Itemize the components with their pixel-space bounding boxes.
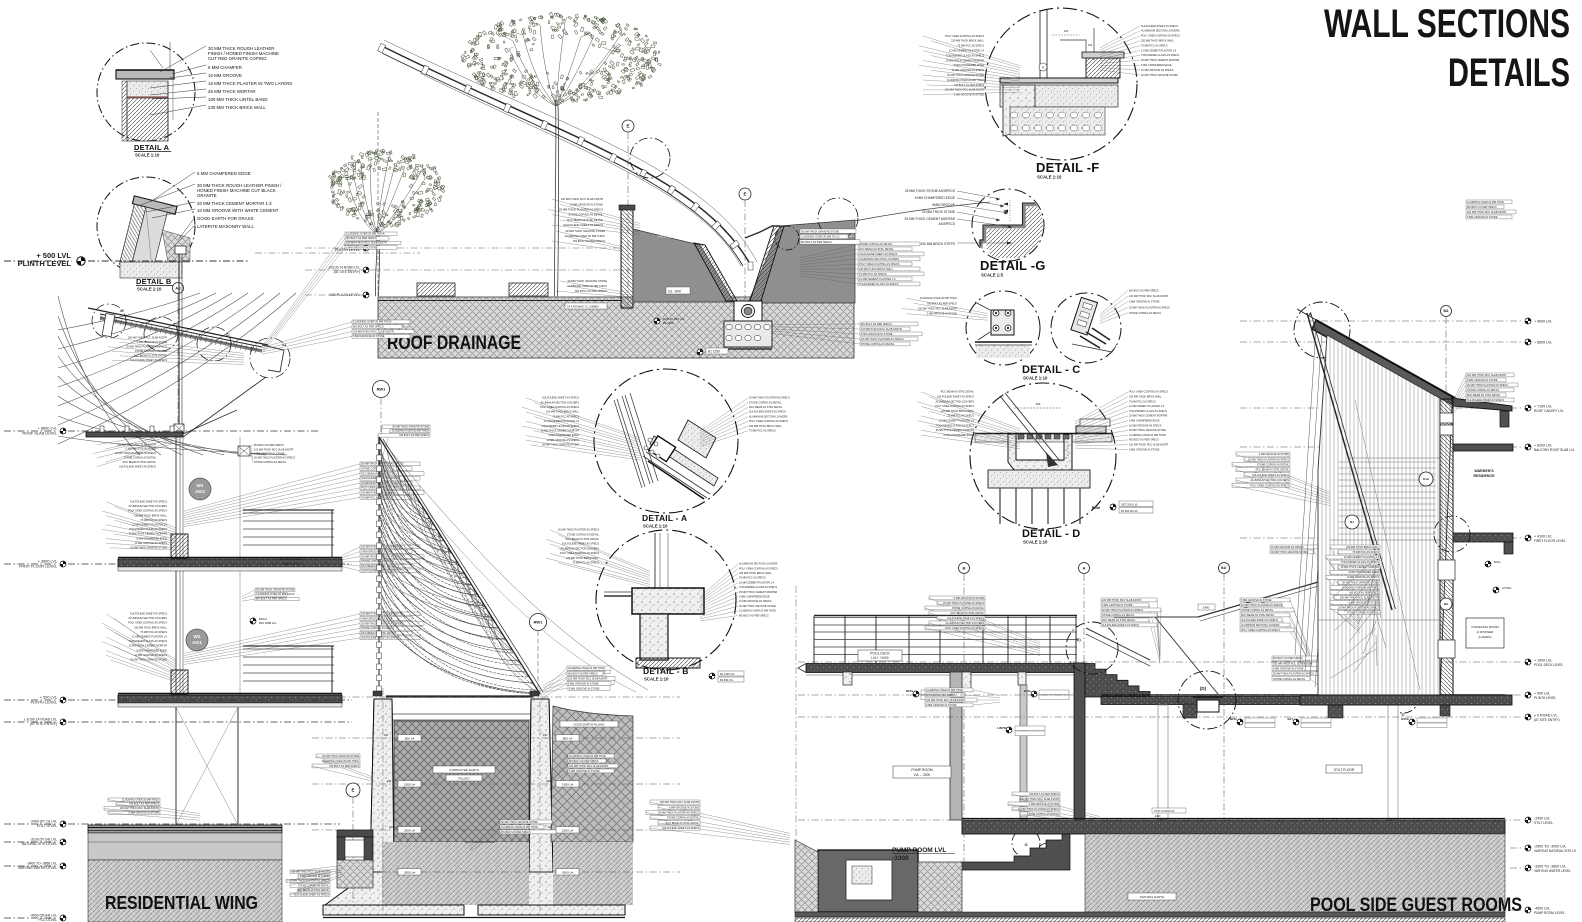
svg-text:100 MM THICK RCC SLAB ASSTR: 100 MM THICK RCC SLAB ASSTR	[1129, 444, 1168, 447]
svg-text:CLADDING OVER 20 MM THICK: CLADDING OVER 20 MM THICK	[1129, 434, 1167, 437]
svg-text:POOL SIDE GUEST ROOMS: POOL SIDE GUEST ROOMS	[1310, 894, 1522, 916]
svg-text:DETAIL -G: DETAIL -G	[980, 258, 1046, 273]
svg-text:COMPACTED EARTH: COMPACTED EARTH	[449, 768, 479, 772]
svg-text:W1: W1	[193, 634, 201, 640]
svg-text:MS BOLT AS PER SPECS: MS BOLT AS PER SPECS	[353, 325, 384, 329]
svg-text:12 MM CEMENT PLASTER 1:4: 12 MM CEMENT PLASTER 1:4	[132, 524, 168, 527]
svg-text:230 MM THICK BRICK WALL: 230 MM THICK BRICK WALL	[951, 40, 985, 43]
svg-text:75 MM PCC AS SPECS: 75 MM PCC AS SPECS	[140, 631, 167, 634]
svg-text:100: 100	[1064, 29, 1069, 33]
svg-text:(AT SITE ENTRY): (AT SITE ENTRY)	[1534, 718, 1560, 722]
svg-text:1500 L#: 1500 L#	[404, 782, 415, 786]
svg-text:SULFOLENE SHEET AS SPECS: SULFOLENE SHEET AS SPECS	[749, 411, 786, 414]
svg-text:SULFOLENE SHEET AS SPECS: SULFOLENE SHEET AS SPECS	[1252, 474, 1289, 477]
svg-text:CLADDING OVER 20 MM THICK: CLADDING OVER 20 MM THICK	[1342, 586, 1380, 589]
svg-text:5 MM GROOVE IN STONE: 5 MM GROOVE IN STONE	[569, 770, 600, 773]
svg-text:MS BOLT AS PER SPECS: MS BOLT AS PER SPECS	[861, 322, 892, 326]
svg-text:+ 1000 LVL: + 1000 LVL	[1534, 659, 1552, 663]
svg-text:2500 L#: 2500 L#	[562, 828, 573, 832]
svg-text:100 MM THICK RCC SLAB ASSTR: 100 MM THICK RCC SLAB ASSTR	[120, 807, 159, 810]
svg-text:230 MM THICK BRICK WALL: 230 MM THICK BRICK WALL	[739, 572, 773, 575]
svg-text:RW1: RW1	[377, 386, 387, 391]
svg-text:CLADDING OVER 20 MM THICK: CLADDING OVER 20 MM THICK	[392, 430, 430, 433]
svg-text:POLY UREA COATING AS SPECS: POLY UREA COATING AS SPECS	[128, 622, 167, 625]
svg-text:230 MM THICK BRICK WALL: 230 MM THICK BRICK WALL	[749, 425, 783, 428]
svg-text:W1: W1	[196, 483, 204, 489]
svg-text:CLADDING OVER 20 MM THICK: CLADDING OVER 20 MM THICK	[346, 232, 385, 236]
svg-text:STILT FLOOR LVL: STILT FLOOR LVL	[1154, 810, 1175, 813]
svg-text:30 MM THICK GRANITE STONE: 30 MM THICK GRANITE STONE	[322, 755, 359, 758]
svg-text:(D): (D)	[1200, 686, 1207, 691]
svg-text:100 MM THICK RCC SLAB ASSTR: 100 MM THICK RCC SLAB ASSTR	[117, 443, 156, 446]
svg-text:5 MM CHAMFERED EDGE: 5 MM CHAMFERED EDGE	[548, 434, 579, 437]
svg-text:WALL SECTIONS: WALL SECTIONS	[1324, 2, 1570, 46]
svg-text:POLY UREA COATING AS SPECS: POLY UREA COATING AS SPECS	[1129, 391, 1168, 394]
svg-text:PUMP ROOM LVL: PUMP ROOM LVL	[892, 847, 946, 854]
svg-text:B1 1320 LVL: B1 1320 LVL	[720, 672, 735, 676]
svg-text:20 MM THICK PLASTER AS SPECS: 20 MM THICK PLASTER AS SPECS	[558, 529, 599, 532]
svg-text:+ 4100 LVL: + 4100 LVL	[1534, 535, 1552, 539]
svg-text:TOUGHENED GLASS AS SPECS: TOUGHENED GLASS AS SPECS	[1341, 561, 1379, 564]
svg-text:1500 L#: 1500 L#	[562, 782, 573, 786]
svg-text:ALUMINIUM SECTION LOUVERS: ALUMINIUM SECTION LOUVERS	[129, 617, 168, 620]
svg-text:SULFOLENE SHEET AS SPECS: SULFOLENE SHEET AS SPECS	[662, 827, 699, 830]
svg-text:AG2: AG2	[195, 489, 205, 495]
svg-text:10 MM GROOVE AS SPECS: 10 MM GROOVE AS SPECS	[135, 542, 168, 545]
svg-text:DETAIL - B: DETAIL - B	[643, 666, 689, 676]
svg-text:VARYING WATER LEVEL: VARYING WATER LEVEL	[1534, 869, 1571, 873]
svg-text:B1 1250: B1 1250	[708, 350, 720, 354]
svg-text:E: E	[626, 124, 629, 129]
svg-text:STILT FLOOR: STILT FLOOR	[1334, 768, 1355, 772]
svg-text:10 MM GROOVE WITH WHITE CEMENT: 10 MM GROOVE WITH WHITE CEMENT	[197, 208, 279, 213]
svg-text:CLADDING OVER 20 MM THICK: CLADDING OVER 20 MM THICK	[567, 284, 607, 288]
svg-text:(AT SITE ENTRY): (AT SITE ENTRY)	[30, 722, 57, 726]
svg-text:MS BOLT AS PER SPECS: MS BOLT AS PER SPECS	[346, 236, 377, 240]
svg-text:12 MM CEMENT PLASTER 1:4: 12 MM CEMENT PLASTER 1:4	[544, 420, 580, 423]
svg-text:PUMP ROOM LEVEL: PUMP ROOM LEVEL	[1534, 911, 1565, 915]
svg-text:STONE COPING AS DETAIL: STONE COPING AS DETAIL	[1273, 678, 1306, 681]
svg-text:5 MM CHAMFER: 5 MM CHAMFER	[208, 65, 242, 70]
svg-text:-2400 (97.7x) LVL: -2400 (97.7x) LVL	[30, 820, 57, 824]
svg-text:POLY UREA COATING AS SPECS: POLY UREA COATING AS SPECS	[935, 405, 974, 408]
svg-text:75 MM PCC AS SPECS: 75 MM PCC AS SPECS	[1129, 400, 1156, 403]
svg-text:2500 L#: 2500 L#	[404, 828, 415, 832]
svg-text:BA': BA'	[1221, 566, 1227, 570]
svg-text:CLADDING OVER 20 MM THICK: CLADDING OVER 20 MM THICK	[801, 235, 840, 239]
svg-text:STONE COPING AS DETAIL: STONE COPING AS DETAIL	[135, 350, 168, 353]
svg-text:ALUMINIUM SECTION LOUVERS: ALUMINIUM SECTION LOUVERS	[946, 622, 985, 625]
svg-text:5 MM GROOVE IN STONE: 5 MM GROOVE IN STONE	[1102, 604, 1133, 607]
svg-text:POLY UREA COATING AS SPECS: POLY UREA COATING AS SPECS	[945, 35, 984, 38]
svg-text:230 MM THICK BRICK WALL: 230 MM THICK BRICK WALL	[134, 514, 168, 517]
svg-text:BALCONY: BALCONY	[283, 562, 300, 566]
svg-text:30 MM THICK GRANITE STONE: 30 MM THICK GRANITE STONE	[256, 588, 295, 592]
svg-text:20 MM THICK PLASTER AS SPECS: 20 MM THICK PLASTER AS SPECS	[943, 602, 984, 605]
svg-text:MS BOLT AS PER SPECS: MS BOLT AS PER SPECS	[1029, 793, 1059, 796]
svg-text:LVL+ +1000: LVL+ +1000	[871, 656, 888, 660]
svg-text:25 MM THICK CEMENT MORTAR: 25 MM THICK CEMENT MORTAR	[946, 59, 984, 62]
svg-text:E: E	[743, 192, 746, 197]
svg-text:75 MM PCC AS SPECS: 75 MM PCC AS SPECS	[957, 45, 984, 48]
svg-text:100 MM THICK RCC SLAB ASSTR: 100 MM THICK RCC SLAB ASSTR	[568, 678, 607, 681]
svg-text:5 MM GROOVE IN STONE: 5 MM GROOVE IN STONE	[1129, 448, 1160, 451]
svg-text:400: 400	[387, 780, 392, 783]
svg-text:POOL DECK LEVEL: POOL DECK LEVEL	[1534, 663, 1564, 667]
svg-text:MS BOLT AS PER SPECS: MS BOLT AS PER SPECS	[569, 760, 599, 763]
svg-text:LINTD: LINTD	[997, 726, 1007, 730]
svg-text:STONE COPING AS DETAIL: STONE COPING AS DETAIL	[1241, 609, 1274, 612]
svg-text:SULFOLENE SHEET AS SPECS: SULFOLENE SHEET AS SPECS	[1241, 619, 1278, 622]
svg-text:STONE COPING AS DETAIL: STONE COPING AS DETAIL	[1467, 389, 1500, 392]
svg-text:100 MM THICK RCC SLAB ASSTR: 100 MM THICK RCC SLAB ASSTR	[1467, 374, 1506, 377]
svg-text:MS BOLT AS PER SPECS: MS BOLT AS PER SPECS	[501, 831, 531, 834]
svg-text:(E): (E)	[1075, 637, 1081, 642]
svg-text:MS BOLT AS PER SPECS: MS BOLT AS PER SPECS	[575, 289, 607, 293]
svg-text:-2900 TO -3000 LVL: -2900 TO -3000 LVL	[1534, 845, 1566, 849]
svg-text:ALUMINIUM SECTION LOUVERS: ALUMINIUM SECTION LOUVERS	[749, 415, 788, 418]
svg-text:30 MM THICK GRANITE STONE: 30 MM THICK GRANITE STONE	[130, 659, 167, 662]
svg-text:MS BOLT AS PER SPECS: MS BOLT AS PER SPECS	[1467, 206, 1497, 209]
svg-text:SULFOLENE SHEET AS SPECS: SULFOLENE SHEET AS SPECS	[1102, 624, 1139, 627]
svg-text:± 0 ROAD LVL: ± 0 ROAD LVL	[1534, 714, 1557, 718]
svg-text:PLINTH LEVEL: PLINTH LEVEL	[18, 259, 72, 268]
svg-text:6: 6	[1042, 66, 1044, 70]
svg-text:+ 7100 LVL: + 7100 LVL	[1534, 405, 1552, 409]
svg-text:5 MM GROOVE IN STONE: 5 MM GROOVE IN STONE	[954, 597, 985, 600]
svg-text:STONE COPING AS DETAIL: STONE COPING AS DETAIL	[298, 884, 330, 887]
svg-text:RCC BEAM AS STRL DETAIL: RCC BEAM AS STRL DETAIL	[123, 461, 157, 464]
svg-text:DETAIL B: DETAIL B	[136, 277, 172, 286]
svg-text:20 MM THICK PLASTER AS SPECS: 20 MM THICK PLASTER AS SPECS	[115, 452, 156, 455]
svg-text:RCC BEAM AS STRL DETAIL: RCC BEAM AS STRL DETAIL	[1102, 619, 1136, 622]
svg-text:100 MM THICK RCC SLAB ASSTR: 100 MM THICK RCC SLAB ASSTR	[1273, 662, 1312, 665]
svg-text:ALUMINIUM SECTION LOUVERS: ALUMINIUM SECTION LOUVERS	[129, 505, 168, 508]
svg-text:DETAIL -F: DETAIL -F	[1036, 160, 1099, 175]
svg-text:5 MM CHAMFERED EDGE: 5 MM CHAMFERED EDGE	[943, 434, 974, 437]
svg-text:30 MM THICK GRANITE STONE: 30 MM THICK GRANITE STONE	[542, 444, 579, 447]
svg-text:5 MM CHAMFERED EDGE: 5 MM CHAMFERED EDGE	[739, 596, 770, 599]
svg-text:12 MM CEMENT PLASTER 1:4: 12 MM CEMENT PLASTER 1:4	[1344, 556, 1380, 559]
svg-text:SULFOLENE SHEET AS SPECS: SULFOLENE SHEET AS SPECS	[947, 617, 984, 620]
svg-text:POOL DECK: POOL DECK	[870, 652, 890, 656]
svg-text:+ 9000 LVL: + 9000 LVL	[1534, 320, 1552, 324]
svg-text:STILT LEVEL: STILT LEVEL	[37, 824, 58, 828]
svg-text:-3300: -3300	[892, 855, 909, 862]
svg-text:10 MM GROOVE AS SPECS: 10 MM GROOVE AS SPECS	[1141, 69, 1174, 72]
svg-text:230 MM THICK BRICK WALL: 230 MM THICK BRICK WALL	[941, 410, 975, 413]
svg-text:PUMP ROOM: PUMP ROOM	[911, 768, 932, 772]
svg-text:-3100 (97.04) LVL: -3100 (97.04) LVL	[30, 838, 57, 842]
svg-text:B15d: B15d	[1092, 506, 1100, 510]
svg-text:230 MM THICK BRICK WALL: 230 MM THICK BRICK WALL	[1129, 396, 1163, 399]
svg-text:POLY UREA COATING AS SPECS: POLY UREA COATING AS SPECS	[749, 420, 788, 423]
svg-text:CLADDING OVER 20 MM THICK: CLADDING OVER 20 MM THICK	[568, 667, 606, 670]
svg-text:20 MM THICK PLASTER AS SPECS: 20 MM THICK PLASTER AS SPECS	[1241, 604, 1282, 607]
svg-text:MS BOLT AS PER SPECS: MS BOLT AS PER SPECS	[926, 694, 956, 697]
svg-text:30 MM THICK GRANITE STONE: 30 MM THICK GRANITE STONE	[801, 229, 840, 233]
svg-text:MS BOLT AS PER SPECS: MS BOLT AS PER SPECS	[801, 240, 832, 244]
svg-text:20 MM THICK PLASTER AS SPECS: 20 MM THICK PLASTER AS SPECS	[559, 208, 603, 212]
svg-text:ALUMINIUM SECTION LOUVERS: ALUMINIUM SECTION LOUVERS	[1251, 479, 1290, 482]
svg-text:STILT LEVEL: STILT LEVEL	[1534, 821, 1553, 825]
svg-text:SCALE 1:10: SCALE 1:10	[643, 524, 668, 529]
svg-text:CLADDING OVER 20 MM THICK: CLADDING OVER 20 MM THICK	[565, 234, 605, 238]
svg-text:12 MM CEMENT PLASTER 1:4: 12 MM CEMENT PLASTER 1:4	[132, 636, 168, 639]
svg-text:B15a: B15a	[906, 689, 914, 693]
svg-text:POLY UREA COATING AS SPECS: POLY UREA COATING AS SPECS	[945, 627, 984, 630]
svg-text:400: 400	[389, 826, 394, 829]
svg-text:CUT RED GRANITE COPING: CUT RED GRANITE COPING	[208, 56, 267, 61]
svg-text:SCALE 1:10: SCALE 1:10	[1037, 175, 1062, 180]
svg-text:-2400: -2400	[1154, 815, 1161, 818]
svg-text:& SHOWER: & SHOWER	[1477, 630, 1495, 634]
svg-text:75 MM PCC AS SPECS: 75 MM PCC AS SPECS	[361, 495, 389, 499]
svg-text:5MM GROOVE: 5MM GROOVE	[932, 203, 956, 207]
svg-text:230 MM THICK BRICK WALL: 230 MM THICK BRICK WALL	[208, 105, 266, 110]
svg-text:RCC BEAM AS STRL DETAIL: RCC BEAM AS STRL DETAIL	[566, 538, 600, 541]
svg-text:100 MM THICK RCC SLAB ASSTR: 100 MM THICK RCC SLAB ASSTR	[918, 308, 957, 311]
svg-text:STONE COPING AS DETAIL: STONE COPING AS DETAIL	[568, 213, 603, 217]
svg-text:20 MM THICK PLASTER AS SPECS: 20 MM THICK PLASTER AS SPECS	[1338, 607, 1379, 610]
svg-text:TOUGHENED GLASS AS SPECS: TOUGHENED GLASS AS SPECS	[541, 425, 579, 428]
svg-text:100 MM THICK RCC SLAB ASSTR: 100 MM THICK RCC SLAB ASSTR	[861, 327, 902, 331]
svg-text:STONE COPING AS DETAIL: STONE COPING AS DETAIL	[1027, 813, 1060, 816]
svg-text:3500 L#: 3500 L#	[404, 870, 415, 874]
svg-text:SULFOLENE SHEET AS SPECS: SULFOLENE SHEET AS SPECS	[937, 396, 974, 399]
svg-text:CLADDING OVER 20 MM THICK: CLADDING OVER 20 MM THICK	[122, 798, 160, 801]
svg-text:E: E	[351, 788, 354, 793]
svg-text:B17: B17	[1287, 717, 1293, 721]
svg-text:RCC BEAM AS STRL DETAIL: RCC BEAM AS STRL DETAIL	[134, 354, 168, 357]
svg-text:400: 400	[543, 734, 548, 737]
svg-text:MS BOLT AS PER SPECS: MS BOLT AS PER SPECS	[568, 672, 598, 675]
svg-text:B: B	[963, 565, 966, 570]
svg-text:WARDEN'S: WARDEN'S	[1474, 469, 1494, 473]
svg-text:5 MM GROOVE IN STONE: 5 MM GROOVE IN STONE	[954, 94, 985, 97]
svg-text:AE: AE	[175, 285, 181, 290]
svg-text:-4500 (95.84) LVL: -4500 (95.84) LVL	[30, 914, 57, 918]
svg-text:400: 400	[548, 826, 553, 829]
svg-text:5 MM GROOVE IN STONE: 5 MM GROOVE IN STONE	[1259, 453, 1290, 456]
svg-text:5 MM CHAMFERED EDGE: 5 MM CHAMFERED EDGE	[915, 196, 956, 200]
svg-text:GOOD EARTH FOR GRASS: GOOD EARTH FOR GRASS	[197, 216, 254, 221]
svg-text:CLADDING OVER 20 MM THICK: CLADDING OVER 20 MM THICK	[353, 320, 392, 324]
svg-text:100 MM THICK RCC SLAB ASSTR: 100 MM THICK RCC SLAB ASSTR	[1340, 596, 1379, 599]
svg-text:AS/SPECS: AS/SPECS	[939, 222, 956, 226]
svg-text:5 MM CHAMFERED EDGE: 5 MM CHAMFERED EDGE	[197, 171, 251, 176]
svg-text:20 MM THICK PLASTER AS SPECS: 20 MM THICK PLASTER AS SPECS	[1129, 306, 1170, 309]
svg-text:ALUMINIUM SECTION LOUVERS: ALUMINIUM SECTION LOUVERS	[561, 547, 600, 550]
svg-text:ALUMINIUM SECTION LOUVERS: ALUMINIUM SECTION LOUVERS	[1141, 30, 1180, 33]
svg-text:TOUGHENED GLASS AS SPECS: TOUGHENED GLASS AS SPECS	[936, 424, 974, 427]
svg-text:-2400 LVL: -2400 LVL	[1534, 817, 1550, 821]
svg-text:SCALE 1:10: SCALE 1:10	[135, 153, 160, 158]
svg-text:CLADDING OVER 20 MM THICK: CLADDING OVER 20 MM THICK	[926, 689, 964, 692]
svg-text:25 MM THICK CEMENT MORTAR: 25 MM THICK CEMENT MORTAR	[739, 591, 777, 594]
svg-text:20 MM THICK PLASTER AS SPECS: 20 MM THICK PLASTER AS SPECS	[1018, 808, 1059, 811]
svg-text:5 MM GROOVE IN STONE: 5 MM GROOVE IN STONE	[570, 202, 603, 206]
svg-text:25 MM THICK STONE AS/SPECS: 25 MM THICK STONE AS/SPECS	[905, 189, 956, 193]
svg-text:G: G	[1024, 842, 1027, 847]
svg-text:100 MM THICK RCC SLAB ASSTR: 100 MM THICK RCC SLAB ASSTR	[569, 765, 608, 768]
svg-text:SCALE 1:10: SCALE 1:10	[644, 677, 669, 682]
svg-text:5 MM GROOVE IN STONE: 5 MM GROOVE IN STONE	[353, 334, 385, 338]
svg-text:TOUGHENED GLASS AS SPECS: TOUGHENED GLASS AS SPECS	[1141, 54, 1179, 57]
svg-text:450: 450	[1036, 402, 1041, 406]
svg-text:20 MM THICK PLASTER AS SPECS: 20 MM THICK PLASTER AS SPECS	[290, 880, 330, 883]
svg-text:PXX ECAL: PXX ECAL	[835, 233, 855, 238]
svg-text:STONE COPING AS DETAIL: STONE COPING AS DETAIL	[254, 461, 287, 464]
svg-text:MS BOLT AS PER SPECS: MS BOLT AS PER SPECS	[1129, 439, 1159, 442]
svg-text:20 MM THICK PLASTER AS SPECS: 20 MM THICK PLASTER AS SPECS	[1248, 458, 1289, 461]
svg-text:100 MM THICK LINTEL BAND: 100 MM THICK LINTEL BAND	[208, 97, 268, 102]
svg-text:SULFOLENE SHEET AS SPECS: SULFOLENE SHEET AS SPECS	[130, 501, 167, 504]
svg-text:5 MM GROOVE IN STONE: 5 MM GROOVE IN STONE	[861, 332, 893, 336]
svg-text:SCALE 1:10: SCALE 1:10	[137, 287, 162, 292]
svg-text:CLADDING OVER 20 MM THICK: CLADDING OVER 20 MM THICK	[739, 610, 777, 613]
svg-text:ALUMINIUM SECTION LOUVERS: ALUMINIUM SECTION LOUVERS	[739, 563, 778, 566]
svg-text:25 MM THICK CEMENT MORTAR: 25 MM THICK CEMENT MORTAR	[1129, 415, 1167, 418]
svg-text:5 MM GROOVE IN STONE: 5 MM GROOVE IN STONE	[669, 806, 700, 809]
svg-text:75 MM PCC AS SPECS: 75 MM PCC AS SPECS	[1141, 44, 1168, 47]
svg-text:ROOF SLAB LEVEL: ROOF SLAB LEVEL	[22, 431, 57, 435]
svg-text:2400: 2400	[1203, 606, 1210, 610]
svg-text:TOUGHENED GLASS AS SPECS: TOUGHENED GLASS AS SPECS	[1129, 410, 1167, 413]
svg-text:100 MM THICK RCC SLAB ASSTR: 100 MM THICK RCC SLAB ASSTR	[353, 329, 394, 333]
svg-text:30 MM THICK GRANITE STONE: 30 MM THICK GRANITE STONE	[739, 605, 776, 608]
svg-text:100 MM THICK RCC SLAB ASSTR: 100 MM THICK RCC SLAB ASSTR	[1129, 295, 1168, 298]
svg-text:75 MM PCC AS SPECS: 75 MM PCC AS SPECS	[140, 519, 167, 522]
svg-text:SULFOLENE SHEET AS SPECS: SULFOLENE SHEET AS SPECS	[1141, 25, 1178, 28]
svg-text:RCC BEAM AS STRL DETAIL: RCC BEAM AS STRL DETAIL	[749, 406, 783, 409]
svg-text:100 MM THICK RCC SLAB ASSTR: 100 MM THICK RCC SLAB ASSTR	[1102, 599, 1141, 602]
svg-text:ALUMINIUM SECTION LOUVERS: ALUMINIUM SECTION LOUVERS	[936, 400, 975, 403]
svg-text:25 MM THICK CEMENT MORTAR: 25 MM THICK CEMENT MORTAR	[936, 429, 974, 432]
svg-text:5 MM GROOVE IN STONE: 5 MM GROOVE IN STONE	[1467, 216, 1498, 219]
svg-text:STONE COPING AS DETAIL: STONE COPING AS DETAIL	[859, 242, 893, 246]
svg-text:SCALE 1:10: SCALE 1:10	[1023, 540, 1048, 545]
svg-text:STONE COPING AS DETAIL: STONE COPING AS DETAIL	[567, 533, 600, 536]
svg-text:RCC BEAM AS STRL DETAIL: RCC BEAM AS STRL DETAIL	[1241, 614, 1275, 617]
svg-text:RCC BEAM AS STRL DETAIL: RCC BEAM AS STRL DETAIL	[567, 218, 603, 222]
svg-text:75 MM PCC AS SPECS: 75 MM PCC AS SPECS	[1352, 551, 1379, 554]
svg-text:BOX TYPE KOTA STONE: BOX TYPE KOTA STONE	[466, 841, 495, 844]
svg-text:20 MM THICK PLASTER AS SPECS: 20 MM THICK PLASTER AS SPECS	[1102, 609, 1143, 612]
svg-text:TOUGHENED GLASS AS SPECS: TOUGHENED GLASS AS SPECS	[946, 54, 984, 57]
svg-text:SCALE 1:5: SCALE 1:5	[981, 273, 1004, 278]
svg-text:+ 6200 LVL: + 6200 LVL	[1534, 444, 1552, 448]
svg-text:RESIDENTIAL WING: RESIDENTIAL WING	[105, 892, 258, 913]
svg-text:B1 800 90 LVL: B1 800 90 LVL	[1121, 509, 1139, 513]
svg-text:VARYING WATER LEVEL: VARYING WATER LEVEL	[18, 866, 57, 870]
svg-text:12 MM CEMENT PLASTER 1:4: 12 MM CEMENT PLASTER 1:4	[739, 581, 775, 584]
svg-text:75 MM PCC AS SPECS: 75 MM PCC AS SPECS	[552, 415, 579, 418]
svg-text:25 MM THICK CEMENT MORTAR: 25 MM THICK CEMENT MORTAR	[1341, 566, 1379, 569]
svg-text:± 3/100.14 ROAD LVL: ± 3/100.14 ROAD LVL	[24, 718, 58, 722]
svg-text:5 MM GROOVE IN STONE: 5 MM GROOVE IN STONE	[1273, 668, 1304, 671]
svg-text:12 MM CEMENT PLASTER 1:4: 12 MM CEMENT PLASTER 1:4	[859, 277, 896, 281]
svg-text:GRANITE: GRANITE	[197, 193, 217, 198]
svg-text:30 MM THICK GRANITE STONE: 30 MM THICK GRANITE STONE	[501, 821, 538, 824]
svg-text:25 MM THICK CEMENT MORTAR: 25 MM THICK CEMENT MORTAR	[1141, 59, 1179, 62]
svg-text:+ 3800 LVL: + 3800 LVL	[38, 560, 57, 564]
svg-text:MS BOLT AS PER SPECS: MS BOLT AS PER SPECS	[129, 803, 159, 806]
svg-text:12 MM CEMENT PLASTER 1:4: 12 MM CEMENT PLASTER 1:4	[1141, 49, 1177, 52]
svg-text:30 MM THICK GRANITE STONE: 30 MM THICK GRANITE STONE	[567, 279, 607, 283]
svg-text:B15C: B15C	[1401, 717, 1410, 721]
svg-text:5 MM GROOVE IN STONE: 5 MM GROOVE IN STONE	[568, 683, 599, 686]
svg-text:10 MM GROOVE: 10 MM GROOVE	[208, 73, 242, 78]
svg-text:12 MM CEMENT PLASTER 1:4: 12 MM CEMENT PLASTER 1:4	[1129, 405, 1165, 408]
svg-text:30 MM THICK GRANITE STONE: 30 MM THICK GRANITE STONE	[1271, 551, 1308, 554]
svg-text:DETAILS: DETAILS	[1448, 51, 1570, 95]
svg-text:20 MM THICK PLASTER AS SPECS: 20 MM THICK PLASTER AS SPECS	[658, 812, 699, 815]
svg-text:ALUMINIUM SECTION LOUVERS: ALUMINIUM SECTION LOUVERS	[859, 257, 899, 261]
svg-text:10 MM GROOVE AS SPECS: 10 MM GROOVE AS SPECS	[739, 600, 772, 603]
svg-text:230: 230	[1088, 43, 1093, 47]
svg-text:400: 400	[384, 734, 389, 737]
svg-text:CLADDING OVER 20 MM THICK: CLADDING OVER 20 MM THICK	[1467, 201, 1505, 204]
svg-text:SULFOLENE SHEET AS SPECS: SULFOLENE SHEET AS SPECS	[1467, 399, 1504, 402]
svg-text:100 MM THICK RCC SLAB ASSTR: 100 MM THICK RCC SLAB ASSTR	[926, 699, 965, 702]
svg-text:LINTEL: LINTEL	[1502, 586, 1512, 590]
svg-text:POLY UREA COATING AS SPECS: POLY UREA COATING AS SPECS	[739, 567, 778, 570]
svg-text:MS BOLT AS PER SPECS: MS BOLT AS PER SPECS	[1129, 290, 1159, 293]
svg-text:LVL - -3000: LVL - -3000	[914, 773, 931, 777]
svg-text:5 MM GROOVE IN STONE: 5 MM GROOVE IN STONE	[1467, 379, 1498, 382]
svg-text:TOUGHENED GLASS AS SPECS: TOUGHENED GLASS AS SPECS	[129, 640, 167, 643]
svg-text:MS BOLT AS PER SPECS: MS BOLT AS PER SPECS	[1273, 657, 1303, 660]
svg-text:100 MM THICK RCC SLAB ASSTR: 100 MM THICK RCC SLAB ASSTR	[254, 448, 293, 451]
svg-text:230 MM THICK BRICK WALL: 230 MM THICK BRICK WALL	[1141, 40, 1175, 43]
svg-text:FIRST FLOOR LEVEL: FIRST FLOOR LEVEL	[19, 564, 57, 568]
svg-text:STONE COPING AS DETAIL: STONE COPING AS DETAIL	[952, 607, 985, 610]
svg-text:5 MM GROOVE IN STONE: 5 MM GROOVE IN STONE	[926, 704, 957, 707]
svg-text:TOUGHENED GLASS AS SPECS: TOUGHENED GLASS AS SPECS	[739, 586, 777, 589]
svg-text:20 MM THICK PLASTER AS SPECS: 20 MM THICK PLASTER AS SPECS	[254, 457, 295, 460]
svg-text:100 MM THICK RCC SLAB ASSTR: 100 MM THICK RCC SLAB ASSTR	[561, 197, 603, 201]
svg-text:PCC LEVEL: PCC LEVEL	[38, 918, 57, 922]
svg-text:SULFOLENE SHEET AS SPECS: SULFOLENE SHEET AS SPECS	[859, 252, 898, 256]
svg-text:LATERITE MASONRY WALL: LATERITE MASONRY WALL	[197, 224, 254, 229]
svg-text:GOOD EARTH FILLING: GOOD EARTH FILLING	[573, 723, 605, 727]
svg-text:100 MM THICK RCC SLAB ASSTR: 100 MM THICK RCC SLAB ASSTR	[128, 336, 167, 339]
svg-text:NATURAL SITE LEVEL: NATURAL SITE LEVEL	[22, 842, 58, 846]
svg-text:SULFOLENE SHEET AS SPECS: SULFOLENE SHEET AS SPECS	[294, 894, 330, 897]
svg-text:800 L#: 800 L#	[405, 736, 415, 740]
svg-text:STONE COPING AS DETAIL: STONE COPING AS DETAIL	[749, 401, 782, 404]
svg-text:10 MM GROOVE AS SPECS: 10 MM GROOVE AS SPECS	[1347, 576, 1380, 579]
svg-text:5 MM GROOVE IN STONE: 5 MM GROOVE IN STONE	[129, 812, 160, 815]
svg-text:FILLING: FILLING	[458, 777, 470, 781]
svg-text:10 MM GROOVE AS SPECS: 10 MM GROOVE AS SPECS	[952, 69, 985, 72]
svg-text:SULFOLENE SHEET AS SPECS: SULFOLENE SHEET AS SPECS	[563, 223, 603, 227]
svg-text:BA: BA	[1444, 309, 1449, 313]
svg-text:SCALE 1:10: SCALE 1:10	[1023, 376, 1048, 381]
svg-text:230 MM THICK BRICK WALL: 230 MM THICK BRICK WALL	[134, 626, 168, 629]
svg-text:10 MM GROOVE AS SPECS: 10 MM GROOVE AS SPECS	[1271, 546, 1304, 549]
svg-text:20 MM THICK PLASTER AS SPECS: 20 MM THICK PLASTER AS SPECS	[126, 345, 167, 348]
svg-text:SULFOLENE SHEET AS SPECS: SULFOLENE SHEET AS SPECS	[542, 397, 579, 400]
svg-text:B15c: B15c	[1230, 717, 1238, 721]
svg-text:25 MM THICK CEMENT MORTAR: 25 MM THICK CEMENT MORTAR	[905, 217, 956, 221]
svg-text:MS BOLT AS PER SPECS: MS BOLT AS PER SPECS	[256, 597, 287, 601]
svg-text:RW1: RW1	[534, 619, 544, 624]
svg-text:CLADDING OVER 20 MM THICK: CLADDING OVER 20 MM THICK	[569, 755, 607, 758]
svg-text:1200MM WIDE: 1200MM WIDE	[280, 557, 304, 561]
svg-text:A2: A2	[120, 309, 124, 313]
